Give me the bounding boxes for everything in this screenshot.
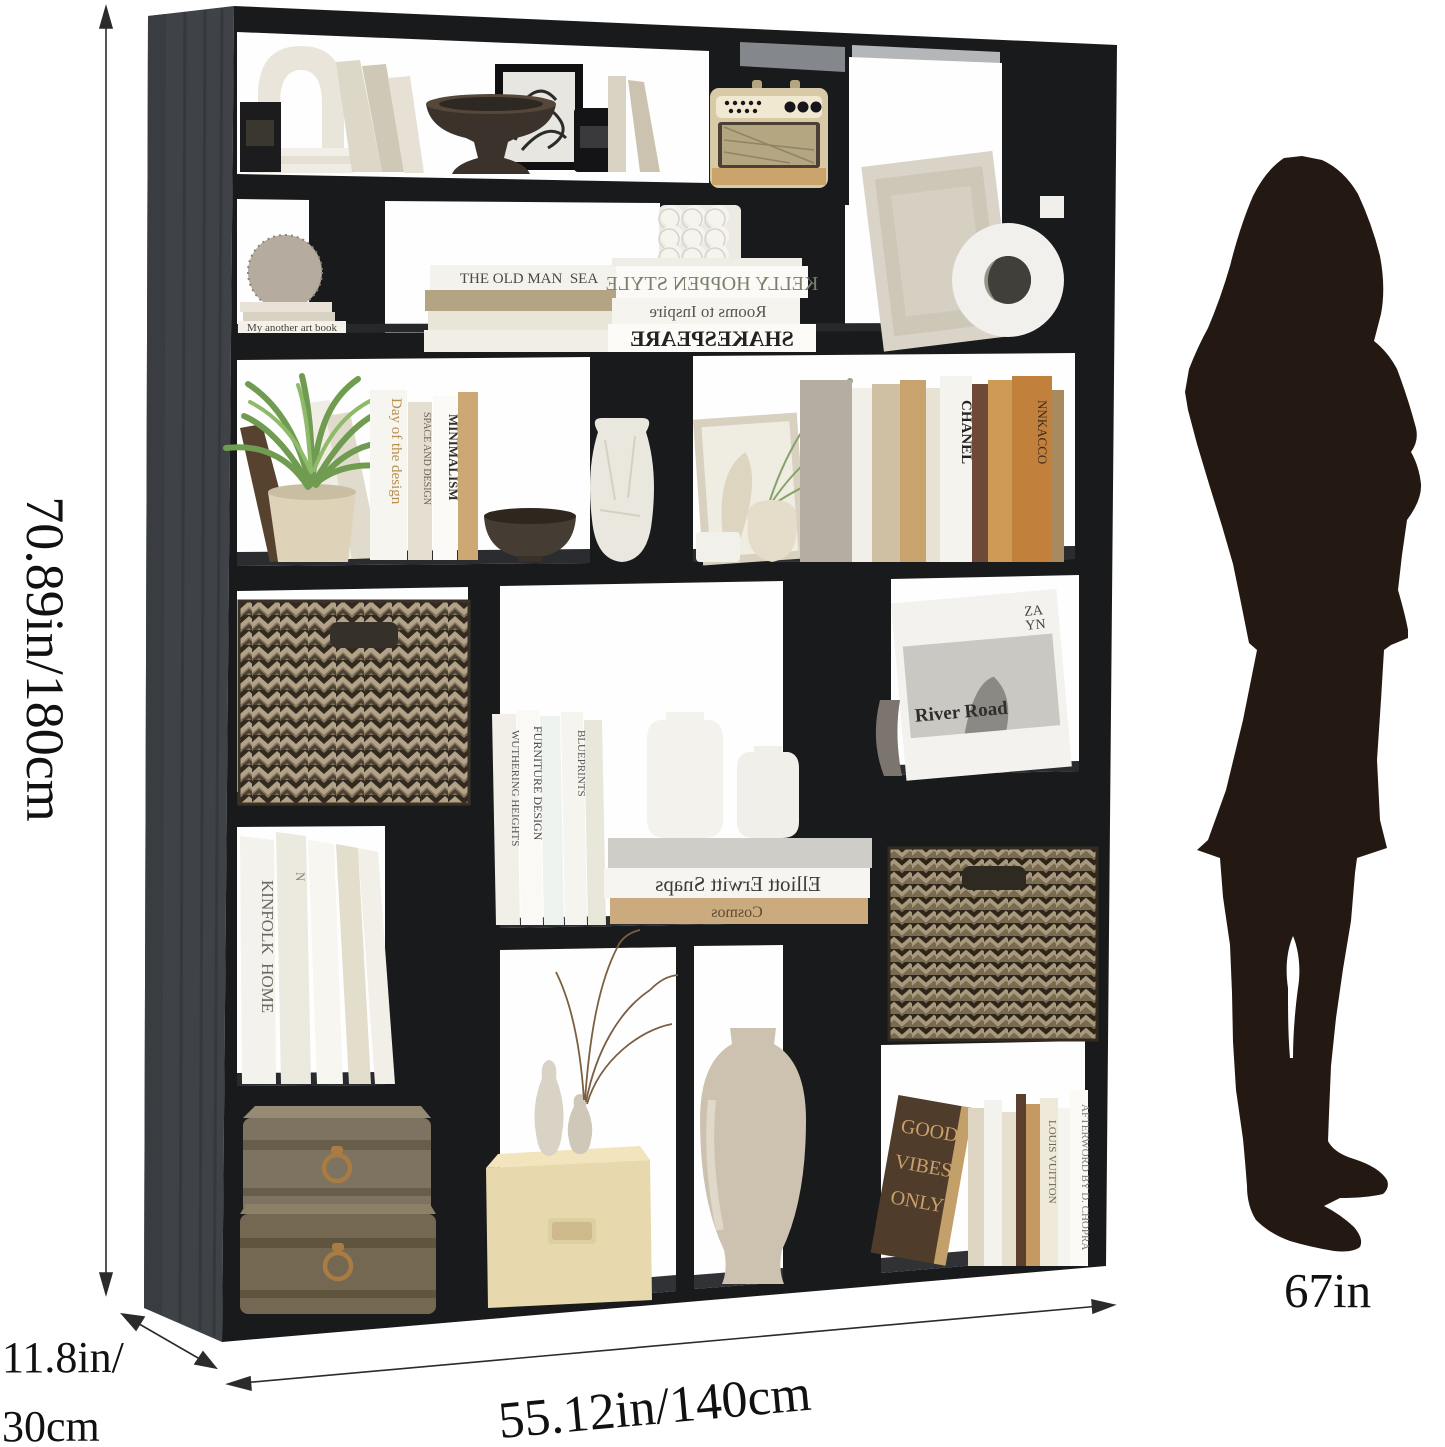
svg-text:Day of the design: Day of the design <box>388 398 404 505</box>
svg-text:Rooms to Inspire: Rooms to Inspire <box>649 302 766 321</box>
svg-text:My another art book: My another art book <box>247 322 338 334</box>
svg-text:N: N <box>293 872 308 882</box>
svg-text:Elliott Erwitt Snaps: Elliott Erwitt Snaps <box>655 872 821 896</box>
svg-text:THE OLD MAN SEA: THE OLD MAN SEA <box>460 271 598 287</box>
svg-text:KINFOLK HOME: KINFOLK HOME <box>258 880 277 1013</box>
svg-text:NNKACCO: NNKACCO <box>1035 400 1050 464</box>
svg-text:WUTHERING HEIGHTS: WUTHERING HEIGHTS <box>509 730 521 846</box>
svg-text:LOUIS VUITTON: LOUIS VUITTON <box>1046 1120 1058 1204</box>
svg-text:YN: YN <box>1025 617 1046 634</box>
svg-text:11.8in/: 11.8in/ <box>2 1333 125 1382</box>
svg-text:AFTERWORD BY D. CHOPRA: AFTERWORD BY D. CHOPRA <box>1079 1104 1091 1250</box>
svg-text:67in: 67in <box>1284 1263 1371 1318</box>
svg-text:30cm: 30cm <box>2 1402 100 1447</box>
svg-text:KELLY HOPPEN STYLE: KELLY HOPPEN STYLE <box>606 273 819 295</box>
svg-text:SPACE AND DESIGN: SPACE AND DESIGN <box>421 412 432 505</box>
svg-text:SHAKESPEARE: SHAKESPEARE <box>630 326 794 351</box>
svg-text:Cosmos: Cosmos <box>711 904 763 921</box>
svg-text:CHANEL: CHANEL <box>958 400 974 464</box>
svg-text:70.89in/180cm: 70.89in/180cm <box>15 496 75 821</box>
svg-text:BLUEPRINTS: BLUEPRINTS <box>575 730 587 797</box>
svg-text:FURNITURE DESIGN: FURNITURE DESIGN <box>531 726 545 841</box>
